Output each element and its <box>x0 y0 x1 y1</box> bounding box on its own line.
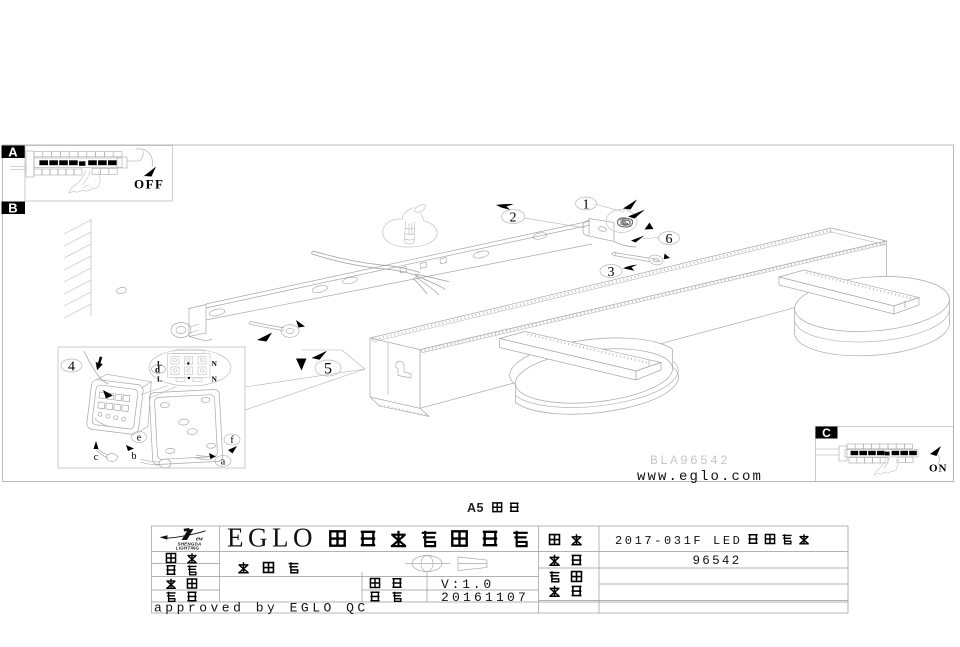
svg-text:A5: A5 <box>467 501 484 515</box>
svg-text:96542: 96542 <box>692 554 741 568</box>
svg-text:2017-031F LED: 2017-031F LED <box>615 534 742 548</box>
svg-text:5: 5 <box>324 361 332 378</box>
svg-text:1: 1 <box>583 198 590 213</box>
svg-text:B: B <box>8 201 17 216</box>
svg-text:OFF: OFF <box>134 177 165 192</box>
svg-text:LIGHTING: LIGHTING <box>176 546 200 551</box>
svg-text:approved by EGLO QC: approved by EGLO QC <box>154 601 369 616</box>
svg-text:N: N <box>212 375 218 384</box>
svg-text:6: 6 <box>666 232 673 247</box>
svg-text:C: C <box>822 426 831 440</box>
svg-text:2: 2 <box>510 211 517 226</box>
svg-text:ON: ON <box>929 463 948 475</box>
svg-text:L: L <box>157 375 162 384</box>
svg-text:A: A <box>8 145 18 160</box>
svg-text:www.eglo.com: www.eglo.com <box>637 469 763 485</box>
svg-text:d: d <box>155 365 160 375</box>
svg-text:b: b <box>132 451 137 462</box>
svg-text:a: a <box>221 457 226 468</box>
svg-text:4: 4 <box>68 360 75 375</box>
svg-text:20161107: 20161107 <box>441 590 529 605</box>
svg-text:EGLO: EGLO <box>227 523 317 553</box>
svg-text:3: 3 <box>608 265 615 280</box>
svg-text:BLA96542: BLA96542 <box>650 453 730 468</box>
svg-text:e: e <box>137 433 142 444</box>
svg-text:N: N <box>212 359 218 368</box>
svg-text:c: c <box>94 452 99 463</box>
